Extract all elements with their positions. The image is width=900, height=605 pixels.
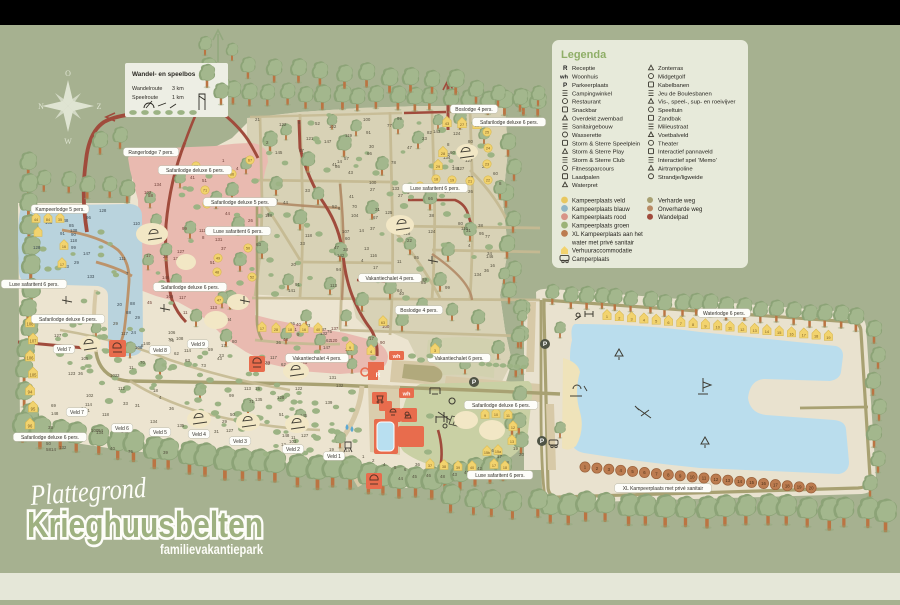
svg-text:Restaurant: Restaurant — [572, 100, 601, 106]
svg-text:123: 123 — [68, 371, 76, 376]
svg-text:24: 24 — [131, 330, 136, 335]
svg-text:16: 16 — [761, 481, 766, 486]
svg-text:Speeltuin: Speeltuin — [658, 108, 683, 114]
svg-text:14: 14 — [737, 479, 742, 484]
svg-text:70: 70 — [352, 204, 357, 209]
svg-text:99: 99 — [71, 245, 76, 250]
svg-text:19: 19 — [826, 336, 830, 340]
svg-text:Interactief spel ‘Memo’: Interactief spel ‘Memo’ — [658, 158, 717, 164]
svg-text:29: 29 — [74, 260, 79, 265]
svg-text:11: 11 — [728, 327, 732, 331]
svg-text:18: 18 — [503, 466, 507, 470]
svg-text:30: 30 — [369, 144, 374, 149]
svg-text:37: 37 — [370, 226, 375, 231]
svg-text:16: 16 — [490, 263, 495, 268]
svg-text:128: 128 — [277, 395, 285, 400]
svg-text:18: 18 — [785, 483, 790, 488]
svg-text:29: 29 — [113, 321, 118, 326]
svg-text:73: 73 — [201, 363, 206, 368]
svg-text:Zonterras: Zonterras — [658, 66, 683, 72]
svg-text:Veld 7: Veld 7 — [57, 347, 71, 353]
svg-text:Veld 6: Veld 6 — [115, 426, 129, 432]
svg-text:69: 69 — [51, 403, 56, 408]
svg-text:11: 11 — [397, 259, 402, 264]
svg-text:31: 31 — [135, 403, 140, 408]
svg-text:100: 100 — [363, 117, 371, 122]
svg-text:16: 16 — [789, 332, 793, 336]
svg-text:128: 128 — [99, 208, 107, 213]
svg-text:43: 43 — [452, 472, 457, 477]
svg-text:71: 71 — [249, 399, 254, 404]
svg-text:39: 39 — [456, 466, 460, 470]
svg-text:60: 60 — [345, 236, 350, 241]
svg-text:Kabelbanen: Kabelbanen — [658, 83, 689, 89]
svg-text:131: 131 — [215, 237, 223, 242]
svg-text:118: 118 — [305, 233, 313, 238]
svg-text:14: 14 — [359, 228, 364, 233]
svg-text:135: 135 — [255, 397, 263, 402]
svg-text:134: 134 — [474, 272, 482, 277]
svg-text:Safarilodge deluxe 6 pers.: Safarilodge deluxe 6 pers. — [472, 403, 530, 409]
svg-text:23: 23 — [485, 162, 489, 167]
svg-text:Luxe safaritent 6 pers.: Luxe safaritent 6 pers. — [9, 282, 58, 288]
svg-text:117: 117 — [270, 355, 278, 360]
svg-text:20: 20 — [809, 486, 814, 491]
svg-text:1: 1 — [606, 315, 608, 319]
svg-text:R: R — [563, 65, 568, 72]
svg-text:113: 113 — [330, 283, 338, 288]
svg-text:105: 105 — [81, 356, 89, 361]
svg-text:67: 67 — [248, 158, 252, 163]
svg-text:5: 5 — [655, 320, 657, 324]
svg-text:91: 91 — [60, 231, 65, 236]
svg-text:66: 66 — [367, 151, 372, 156]
svg-text:44: 44 — [225, 211, 230, 216]
svg-text:wh: wh — [559, 75, 569, 81]
svg-text:38: 38 — [343, 247, 348, 252]
svg-text:44: 44 — [283, 200, 288, 205]
svg-text:58: 58 — [148, 193, 153, 198]
svg-text:37: 37 — [221, 246, 226, 251]
svg-text:17: 17 — [60, 263, 64, 267]
svg-text:Sanitairgebouw: Sanitairgebouw — [572, 125, 613, 131]
svg-text:96: 96 — [86, 215, 91, 220]
svg-text:38: 38 — [442, 465, 446, 469]
svg-text:67: 67 — [373, 215, 378, 220]
svg-text:135: 135 — [177, 423, 185, 428]
svg-text:127: 127 — [54, 333, 62, 338]
svg-text:51: 51 — [202, 178, 207, 183]
svg-text:99: 99 — [445, 285, 450, 290]
svg-text:124: 124 — [428, 229, 436, 234]
svg-text:Kampeerplaats blauw: Kampeerplaats blauw — [572, 207, 630, 213]
svg-text:95: 95 — [31, 406, 36, 411]
svg-text:Waterlodge 6 pers.: Waterlodge 6 pers. — [703, 311, 745, 317]
svg-text:3 km: 3 km — [172, 86, 184, 92]
svg-text:O: O — [65, 69, 71, 78]
svg-text:29: 29 — [135, 315, 140, 320]
svg-text:Camperplaats: Camperplaats — [572, 257, 609, 263]
svg-text:33: 33 — [300, 241, 305, 246]
svg-text:60: 60 — [493, 171, 498, 176]
svg-text:6: 6 — [667, 321, 669, 325]
svg-text:Voetbalveld: Voetbalveld — [658, 133, 688, 139]
svg-text:95: 95 — [479, 231, 484, 236]
svg-text:15: 15 — [749, 480, 754, 485]
svg-text:62: 62 — [174, 351, 179, 356]
svg-text:88: 88 — [126, 310, 131, 315]
svg-text:42: 42 — [477, 466, 482, 471]
svg-text:33: 33 — [123, 401, 128, 406]
svg-text:45: 45 — [147, 300, 152, 305]
svg-text:40: 40 — [470, 466, 474, 470]
svg-text:40: 40 — [316, 328, 320, 332]
svg-text:familievakantiepark: familievakantiepark — [160, 542, 263, 557]
svg-text:Veld 7: Veld 7 — [70, 410, 84, 416]
svg-text:25: 25 — [485, 130, 489, 135]
svg-text:Wasserette: Wasserette — [572, 133, 602, 139]
svg-text:64: 64 — [397, 288, 402, 293]
svg-text:Overdekt zwembad: Overdekt zwembad — [572, 116, 623, 122]
svg-text:94: 94 — [28, 389, 33, 394]
svg-text:112: 112 — [118, 386, 126, 391]
svg-text:Jeu de Boulesbanen: Jeu de Boulesbanen — [658, 91, 712, 97]
svg-text:Veld 5: Veld 5 — [153, 430, 167, 436]
svg-text:15: 15 — [777, 331, 781, 335]
svg-text:33: 33 — [305, 188, 310, 193]
svg-text:137: 137 — [331, 326, 339, 331]
svg-text:Kampeerplaats rood: Kampeerplaats rood — [572, 215, 626, 221]
svg-text:17: 17 — [773, 482, 778, 487]
svg-text:128: 128 — [33, 245, 41, 250]
svg-text:145: 145 — [275, 150, 283, 155]
svg-text:Safarilodge deluxe 6 pers.: Safarilodge deluxe 6 pers. — [39, 317, 97, 323]
svg-text:113: 113 — [244, 386, 252, 391]
svg-text:8: 8 — [692, 323, 694, 327]
svg-text:102: 102 — [110, 373, 118, 378]
svg-text:26: 26 — [468, 189, 473, 194]
svg-text:127: 127 — [177, 249, 185, 254]
svg-text:Veld 2: Veld 2 — [286, 447, 300, 453]
svg-text:27: 27 — [398, 193, 403, 198]
svg-text:Luxe safaritent 6 pers.: Luxe safaritent 6 pers. — [475, 473, 524, 479]
svg-text:146: 146 — [162, 275, 170, 280]
svg-text:Snackbar: Snackbar — [572, 108, 597, 114]
svg-text:17: 17 — [369, 336, 374, 341]
svg-text:19: 19 — [513, 446, 518, 451]
svg-text:27: 27 — [460, 122, 465, 127]
svg-text:Kampeerplaats veld: Kampeerplaats veld — [572, 199, 625, 205]
svg-text:P: P — [563, 82, 567, 89]
svg-text:143: 143 — [433, 129, 441, 134]
svg-text:142: 142 — [337, 253, 345, 258]
svg-text:122: 122 — [279, 122, 287, 127]
svg-text:16: 16 — [62, 245, 66, 249]
svg-text:134: 134 — [154, 182, 162, 187]
svg-text:108: 108 — [176, 336, 184, 341]
svg-text:11: 11 — [129, 365, 134, 370]
svg-text:90: 90 — [380, 340, 385, 345]
svg-text:50: 50 — [46, 441, 51, 446]
svg-text:89: 89 — [422, 277, 427, 282]
svg-text:XL Kampeerplaats aan het: XL Kampeerplaats aan het — [572, 232, 643, 238]
svg-text:96: 96 — [28, 423, 33, 428]
svg-text:125: 125 — [385, 210, 393, 215]
svg-text:31: 31 — [214, 429, 219, 434]
svg-text:Wandel- en speelbos: Wandel- en speelbos — [132, 71, 196, 78]
svg-text:28: 28 — [163, 254, 168, 259]
svg-text:26: 26 — [248, 218, 253, 223]
svg-text:Campingwinkel: Campingwinkel — [572, 91, 612, 97]
svg-text:39: 39 — [163, 450, 168, 455]
svg-text:Safarilodge deluxe 6 pers.: Safarilodge deluxe 6 pers. — [480, 120, 538, 126]
svg-text:148: 148 — [282, 433, 290, 438]
svg-text:40: 40 — [110, 446, 115, 451]
svg-text:102: 102 — [86, 393, 94, 398]
svg-text:99: 99 — [397, 116, 402, 121]
svg-text:Kampeerplaats groen: Kampeerplaats groen — [572, 224, 629, 230]
svg-text:85: 85 — [414, 255, 419, 260]
svg-text:120: 120 — [330, 338, 338, 343]
svg-text:12: 12 — [714, 477, 719, 482]
svg-text:17: 17 — [146, 253, 151, 258]
svg-text:29: 29 — [222, 419, 227, 424]
svg-text:99: 99 — [229, 393, 234, 398]
svg-text:27: 27 — [370, 187, 375, 192]
svg-text:Safarilodge deluxe 6 pers.: Safarilodge deluxe 6 pers. — [21, 435, 79, 441]
svg-text:38: 38 — [429, 213, 434, 218]
svg-text:36: 36 — [484, 268, 489, 273]
svg-text:XL Kampeerplaats met privé san: XL Kampeerplaats met privé sanitair — [623, 486, 704, 492]
svg-text:37: 37 — [428, 464, 432, 468]
svg-text:47: 47 — [217, 298, 221, 303]
svg-text:17: 17 — [260, 327, 264, 331]
svg-text:91: 91 — [366, 130, 371, 135]
svg-text:47: 47 — [407, 145, 412, 150]
svg-text:76: 76 — [169, 338, 174, 343]
svg-text:15a: 15a — [495, 450, 502, 454]
svg-text:Parkeerplaats: Parkeerplaats — [572, 83, 608, 89]
svg-text:1 km: 1 km — [172, 95, 184, 101]
svg-text:10: 10 — [690, 475, 695, 480]
svg-text:Veld 1: Veld 1 — [327, 454, 341, 460]
svg-text:132: 132 — [59, 445, 67, 450]
svg-text:99: 99 — [182, 226, 187, 231]
svg-text:28: 28 — [274, 328, 278, 332]
svg-text:100: 100 — [91, 428, 99, 433]
svg-text:36: 36 — [415, 462, 420, 467]
svg-text:77: 77 — [387, 123, 392, 128]
svg-text:48: 48 — [440, 474, 445, 479]
svg-text:47: 47 — [334, 245, 339, 250]
svg-text:11: 11 — [506, 414, 510, 418]
svg-text:63: 63 — [256, 242, 261, 247]
svg-text:131: 131 — [329, 375, 337, 380]
svg-text:9: 9 — [704, 324, 706, 328]
svg-text:147: 147 — [324, 139, 332, 144]
svg-text:148: 148 — [51, 411, 59, 416]
svg-text:Storm & Sterre Speelplein: Storm & Sterre Speelplein — [572, 141, 640, 147]
svg-text:43: 43 — [445, 121, 450, 126]
svg-text:41: 41 — [349, 194, 354, 199]
svg-text:16: 16 — [302, 328, 306, 332]
svg-text:17: 17 — [221, 343, 226, 348]
svg-text:18: 18 — [814, 335, 818, 339]
svg-text:45: 45 — [412, 474, 417, 479]
svg-text:85: 85 — [69, 223, 74, 228]
svg-text:118: 118 — [70, 238, 78, 243]
svg-text:44: 44 — [34, 218, 38, 222]
svg-text:29: 29 — [436, 164, 441, 169]
svg-text:Verhuuraccommodatie: Verhuuraccommodatie — [572, 249, 633, 255]
svg-text:Receptie: Receptie — [572, 66, 596, 72]
svg-text:2: 2 — [618, 316, 620, 320]
svg-text:52: 52 — [332, 204, 337, 209]
svg-text:10: 10 — [494, 413, 498, 417]
svg-text:82: 82 — [427, 130, 432, 135]
svg-text:P: P — [540, 438, 545, 445]
svg-text:52: 52 — [250, 275, 254, 280]
svg-text:35: 35 — [48, 425, 53, 430]
svg-text:21: 21 — [255, 117, 260, 122]
svg-text:Boslodge 4 pers.: Boslodge 4 pers. — [400, 308, 438, 314]
svg-text:36: 36 — [276, 340, 281, 345]
svg-text:4: 4 — [370, 350, 372, 354]
svg-text:9: 9 — [484, 414, 486, 418]
svg-text:Veld 4: Veld 4 — [192, 432, 206, 438]
svg-text:66: 66 — [428, 196, 433, 201]
svg-text:116: 116 — [370, 253, 378, 258]
svg-text:114: 114 — [85, 402, 93, 407]
svg-text:10: 10 — [716, 325, 720, 329]
svg-text:Vakantiechalet 4 pers.: Vakantiechalet 4 pers. — [292, 356, 341, 362]
svg-text:W: W — [64, 137, 72, 146]
svg-text:141: 141 — [288, 288, 296, 293]
svg-text:110: 110 — [133, 221, 141, 226]
svg-text:13: 13 — [510, 440, 514, 444]
svg-text:134: 134 — [150, 419, 158, 424]
svg-text:Luxe safaritent 6 pers.: Luxe safaritent 6 pers. — [410, 186, 459, 192]
svg-text:46: 46 — [426, 473, 431, 478]
svg-text:13: 13 — [725, 478, 730, 483]
svg-text:34: 34 — [487, 251, 492, 256]
svg-text:18: 18 — [288, 328, 292, 332]
svg-text:Theater: Theater — [658, 141, 678, 147]
svg-text:102: 102 — [329, 124, 337, 129]
svg-text:140: 140 — [143, 341, 151, 346]
svg-text:14: 14 — [51, 447, 56, 452]
svg-text:147: 147 — [323, 345, 331, 350]
svg-text:P: P — [543, 341, 548, 348]
svg-text:Boslodge 4 pers.: Boslodge 4 pers. — [455, 107, 493, 113]
svg-text:Rangerlodge 7 pers.: Rangerlodge 7 pers. — [128, 150, 173, 156]
svg-text:91: 91 — [295, 282, 300, 287]
svg-text:Wandelroute: Wandelroute — [132, 86, 162, 92]
svg-text:Vakantiechalet 4 pers.: Vakantiechalet 4 pers. — [365, 276, 414, 282]
svg-text:114: 114 — [184, 348, 192, 353]
svg-text:17: 17 — [373, 265, 378, 270]
svg-text:Kampeerlodge 5 pers.: Kampeerlodge 5 pers. — [35, 207, 84, 213]
svg-text:Onverharde weg: Onverharde weg — [658, 207, 702, 213]
svg-text:57: 57 — [344, 156, 349, 161]
svg-text:15: 15 — [255, 386, 260, 391]
svg-text:127: 127 — [301, 433, 309, 438]
svg-text:36: 36 — [169, 406, 174, 411]
svg-text:Vis-, speel-, sup- en roeivijv: Vis-, speel-, sup- en roeivijver — [658, 100, 736, 106]
svg-text:R: R — [376, 372, 381, 379]
svg-text:Zandbak: Zandbak — [658, 116, 681, 122]
svg-text:105: 105 — [30, 372, 38, 377]
svg-text:31: 31 — [375, 207, 380, 212]
svg-text:wh: wh — [402, 392, 411, 398]
svg-text:water met privé sanitair: water met privé sanitair — [571, 240, 634, 246]
svg-text:35: 35 — [58, 218, 62, 222]
svg-text:132: 132 — [336, 383, 344, 388]
svg-text:Safarilodge deluxe 5 pers.: Safarilodge deluxe 5 pers. — [211, 200, 269, 206]
svg-text:43: 43 — [348, 170, 353, 175]
svg-text:78: 78 — [391, 160, 396, 165]
svg-text:139: 139 — [325, 400, 333, 405]
svg-text:Krieghuusbelten: Krieghuusbelten — [27, 504, 263, 545]
svg-text:21: 21 — [468, 179, 472, 184]
svg-text:Strandje/ligweide: Strandje/ligweide — [658, 175, 704, 181]
svg-text:11: 11 — [702, 476, 707, 481]
svg-text:9: 9 — [349, 346, 351, 350]
svg-text:28: 28 — [441, 151, 446, 156]
svg-text:Veld 9: Veld 9 — [191, 342, 205, 348]
svg-text:Legenda: Legenda — [561, 49, 607, 61]
svg-text:118: 118 — [102, 412, 110, 417]
svg-text:N: N — [38, 102, 44, 111]
svg-text:17: 17 — [492, 464, 496, 468]
svg-text:121: 121 — [306, 136, 314, 141]
svg-text:41: 41 — [332, 162, 337, 167]
svg-text:Speelroute: Speelroute — [132, 95, 158, 101]
svg-text:84: 84 — [46, 218, 50, 222]
svg-text:60: 60 — [450, 150, 455, 155]
svg-text:Storm & Sterre Play: Storm & Sterre Play — [572, 150, 624, 156]
svg-text:133: 133 — [87, 274, 95, 279]
svg-text:Wandelpad: Wandelpad — [658, 215, 688, 221]
svg-text:20: 20 — [117, 302, 122, 307]
svg-text:12: 12 — [740, 328, 744, 332]
svg-text:70: 70 — [140, 360, 145, 365]
svg-text:111: 111 — [119, 256, 126, 261]
svg-text:71: 71 — [203, 188, 207, 193]
svg-text:12: 12 — [511, 426, 515, 430]
svg-text:107: 107 — [342, 229, 350, 234]
svg-text:106: 106 — [168, 330, 176, 335]
svg-text:Luxe safaritent 6 pers.: Luxe safaritent 6 pers. — [213, 229, 262, 235]
svg-text:Safarilodge deluxe 6 pers.: Safarilodge deluxe 6 pers. — [161, 285, 219, 291]
svg-text:106: 106 — [27, 355, 35, 360]
svg-text:133: 133 — [392, 186, 400, 191]
svg-text:Airtrampoline: Airtrampoline — [658, 166, 693, 172]
svg-text:41: 41 — [190, 175, 195, 180]
svg-text:23: 23 — [422, 136, 427, 141]
svg-text:100: 100 — [369, 180, 377, 185]
svg-text:Veld 3: Veld 3 — [233, 439, 247, 445]
svg-text:119: 119 — [345, 133, 353, 138]
svg-text:47: 47 — [299, 148, 304, 153]
svg-text:Storm & Sterre Club: Storm & Sterre Club — [572, 158, 625, 164]
svg-text:76: 76 — [128, 449, 133, 454]
svg-text:18: 18 — [153, 388, 158, 393]
svg-text:20: 20 — [519, 452, 524, 457]
svg-text:94: 94 — [98, 428, 103, 433]
svg-text:106: 106 — [166, 294, 174, 299]
svg-text:124: 124 — [453, 131, 461, 136]
